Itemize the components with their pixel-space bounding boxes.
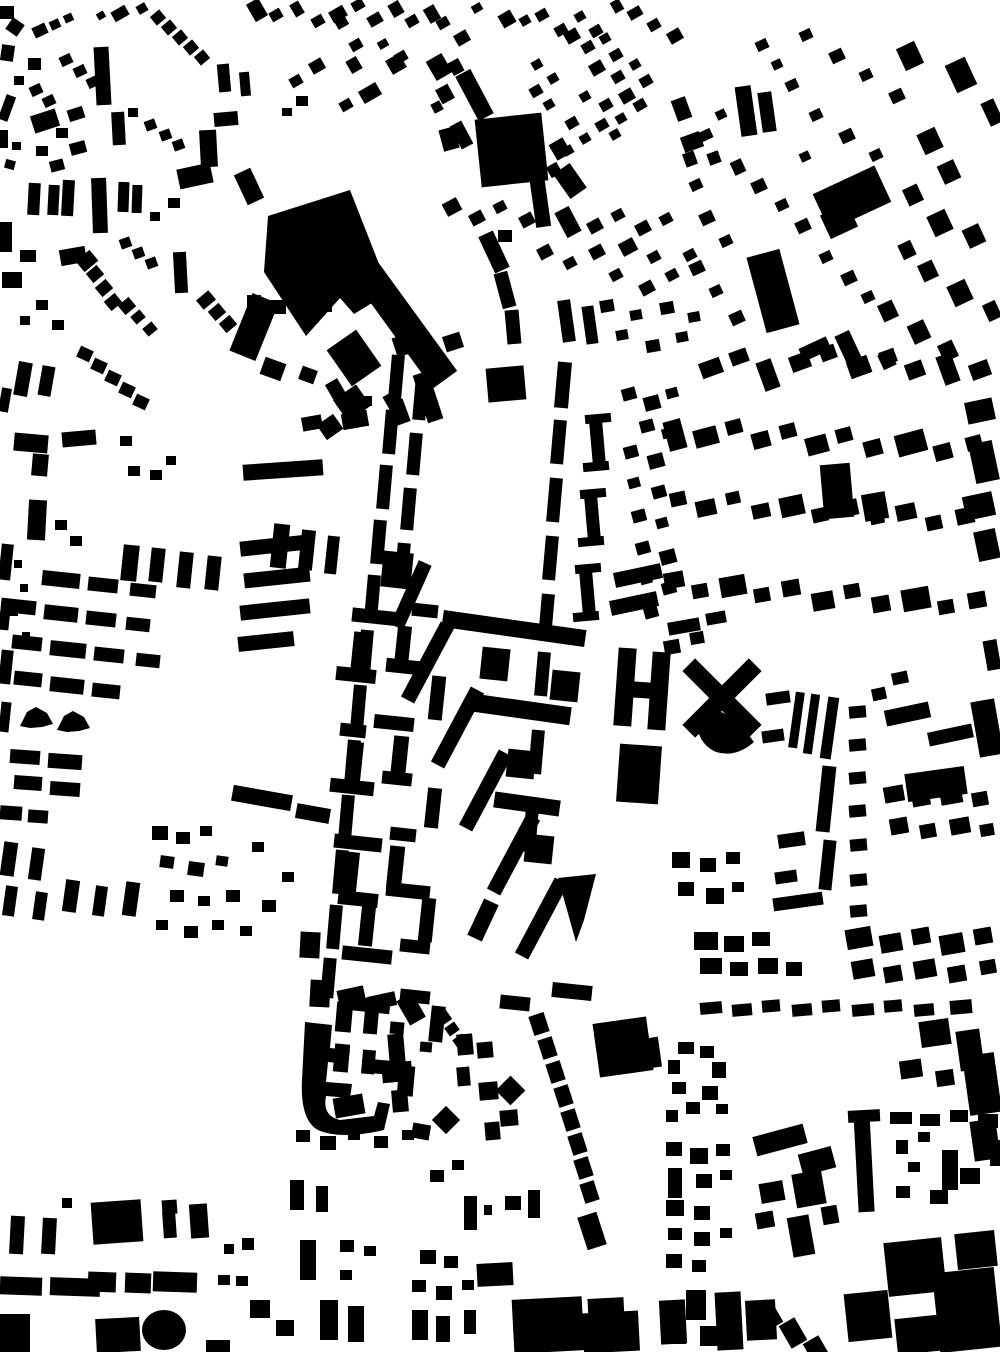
building-footprint [452, 1160, 464, 1170]
building-footprint [14, 560, 22, 568]
building-footprint [935, 1069, 955, 1087]
building-footprint [758, 1180, 785, 1204]
building-footprint [363, 1007, 379, 1034]
building-footprint [226, 890, 240, 902]
building-footprint [849, 804, 867, 817]
building-footprint [132, 185, 143, 213]
round-building [142, 1310, 186, 1350]
building-footprint [762, 999, 781, 1013]
building-footprint [911, 927, 932, 946]
building-footprint [666, 1142, 682, 1156]
building-footprint [436, 1316, 450, 1342]
building-footprint [896, 1186, 910, 1198]
building-footprint [724, 936, 744, 952]
building-footprint [348, 1306, 364, 1342]
building-footprint [213, 111, 238, 127]
building-footprint [753, 587, 771, 604]
building-footprint [290, 1180, 304, 1210]
building-footprint [215, 855, 228, 867]
building-footprint [189, 1203, 209, 1238]
building-footprint [31, 453, 49, 476]
building-footprint [663, 639, 681, 656]
building-footprint [666, 1200, 684, 1216]
building-footprint [908, 1162, 920, 1172]
building-footprint [850, 904, 868, 917]
building-footprint [979, 823, 995, 837]
building-footprint [899, 1059, 923, 1080]
building-footprint [412, 1280, 426, 1292]
building-footprint [896, 1140, 908, 1154]
building-footprint [686, 1102, 700, 1114]
building-footprint [0, 805, 22, 821]
building-footprint [166, 456, 176, 465]
building-footprint [309, 979, 330, 1007]
building-footprint [550, 670, 581, 703]
building-footprint [938, 932, 965, 956]
building-footprint [339, 723, 366, 739]
building-footprint [786, 962, 802, 976]
building-footprint [41, 1218, 57, 1255]
building-footprint [200, 826, 212, 836]
building-footprint [13, 671, 42, 688]
building-footprint [700, 1046, 714, 1058]
building-footprint [720, 1228, 732, 1238]
building-footprint [690, 1148, 708, 1164]
building-footprint [391, 1089, 409, 1112]
building-footprint [755, 1211, 776, 1230]
building-footprint [176, 832, 190, 844]
building-footprint [168, 198, 180, 208]
building-footprint [678, 882, 694, 896]
building-footprint [55, 520, 67, 530]
building-footprint [28, 58, 41, 70]
building-footprint [156, 920, 168, 930]
building-footprint [12, 142, 21, 150]
building-footprint [883, 965, 904, 984]
building-footprint [844, 1290, 893, 1342]
building-footprint [668, 1168, 682, 1198]
building-footprint [129, 583, 156, 599]
building-footprint [50, 781, 81, 797]
building-footprint [476, 1262, 513, 1287]
building-footprint [14, 775, 43, 791]
building-footprint [36, 300, 48, 310]
building-footprint [821, 1205, 840, 1226]
building-footprint [22, 632, 30, 640]
building-footprint [663, 570, 685, 589]
building-footprint [128, 466, 140, 476]
building-footprint [954, 1230, 998, 1270]
building-footprint [120, 436, 132, 446]
building-footprint [678, 1042, 694, 1054]
building-footprint [720, 1170, 732, 1180]
building-footprint [150, 470, 162, 480]
building-footprint [47, 185, 60, 216]
building-footprint [694, 932, 718, 950]
building-footprint [582, 1311, 640, 1352]
building-footprint [212, 920, 224, 930]
building-footprint [340, 1240, 354, 1252]
building-footprint [239, 72, 251, 97]
building-footprint [320, 1300, 338, 1340]
building-footprint [484, 1121, 501, 1140]
building-footprint [851, 958, 876, 980]
building-footprint [159, 855, 175, 869]
building-footprint [10, 749, 41, 765]
building-footprint [920, 1114, 940, 1126]
building-footprint [979, 959, 997, 976]
building-footprint [91, 178, 108, 233]
building-footprint [668, 1228, 682, 1240]
building-footprint [781, 579, 802, 598]
building-footprint [282, 872, 294, 882]
building-footprint [250, 1300, 270, 1318]
building-footprint [217, 64, 231, 93]
building-footprint [20, 250, 36, 262]
building-footprint [300, 1240, 316, 1280]
building-footprint [62, 1198, 72, 1208]
building-footprint [686, 1290, 706, 1320]
building-footprint [20, 584, 28, 592]
building-footprint [88, 1272, 117, 1293]
building-footprint [10, 608, 18, 616]
building-footprint [27, 183, 41, 216]
building-footprint [645, 339, 661, 353]
building-footprint [752, 932, 770, 946]
building-footprint [937, 599, 955, 616]
building-footprint [420, 1250, 436, 1264]
building-footprint [811, 590, 836, 612]
building-footprint [95, 1317, 141, 1352]
building-footprint [128, 108, 138, 117]
building-footprint [528, 1190, 540, 1218]
building-footprint [111, 112, 126, 146]
building-footprint [14, 76, 24, 85]
building-footprint [942, 1150, 958, 1190]
building-footprint [135, 653, 160, 668]
building-footprint [716, 1144, 730, 1156]
building-footprint [240, 926, 252, 936]
building-footprint [506, 749, 537, 780]
building-footprint [694, 1206, 710, 1220]
building-footprint [476, 1041, 493, 1058]
building-footprint [173, 252, 188, 294]
building-footprint [91, 683, 120, 700]
building-footprint [850, 873, 868, 886]
building-footprint [666, 1254, 682, 1268]
building-footprint [9, 1216, 25, 1255]
building-footprint [672, 852, 690, 868]
building-footprint [28, 809, 49, 823]
building-footprint [236, 1276, 248, 1286]
building-footprint [918, 1132, 930, 1142]
building-footprint [498, 230, 512, 242]
building-footprint [262, 900, 276, 912]
building-footprint [316, 1186, 328, 1212]
building-footprint [884, 999, 903, 1013]
building-footprint [499, 1109, 518, 1127]
building-footprint [505, 1196, 521, 1210]
building-footprint [420, 1041, 433, 1052]
building-footprints-svg [0, 0, 1000, 1352]
building-footprint [889, 817, 910, 836]
building-footprint [732, 882, 744, 892]
building-footprint [198, 896, 210, 906]
building-footprint [694, 1232, 710, 1246]
building-footprint [296, 96, 308, 106]
building-footprint [691, 583, 709, 600]
building-footprint [629, 309, 643, 321]
building-footprint [13, 433, 48, 454]
building-footprint [464, 1310, 476, 1334]
building-footprint [125, 1273, 152, 1294]
building-footprint [150, 212, 160, 221]
building-footprint [20, 316, 30, 325]
building-footprint [700, 858, 716, 872]
building-footprint [599, 299, 615, 313]
building-footprint [478, 1081, 498, 1101]
building-footprint [52, 320, 64, 330]
building-footprint [672, 1082, 686, 1094]
building-footprint [340, 1270, 352, 1280]
building-footprint [162, 1212, 177, 1239]
building-footprint [0, 6, 14, 19]
building-footprint [949, 999, 972, 1015]
building-footprint [879, 932, 904, 954]
building-footprint [914, 1003, 935, 1017]
building-footprint [444, 1256, 458, 1268]
building-footprint [949, 816, 971, 835]
building-footprint [464, 1196, 477, 1230]
building-footprint [700, 1001, 723, 1015]
building-footprint [950, 1110, 968, 1122]
building-footprint [61, 180, 75, 217]
building-footprint [849, 705, 867, 718]
building-footprint [456, 1066, 471, 1086]
building-footprint [456, 1033, 474, 1055]
building-footprint [484, 1205, 492, 1215]
building-footprint [689, 631, 705, 645]
building-footprint [702, 1086, 718, 1100]
building-footprint [730, 962, 748, 976]
building-footprint [436, 1286, 452, 1300]
building-footprint [700, 1326, 722, 1346]
building-footprint [389, 827, 416, 843]
building-footprint [0, 1314, 30, 1352]
building-footprint [675, 331, 689, 343]
building-footprint [638, 1037, 662, 1069]
building-footprint [947, 965, 968, 984]
figure-ground-city-map [0, 0, 1000, 1352]
building-footprint [199, 130, 218, 168]
building-footprint [615, 329, 629, 341]
building-footprint [187, 861, 205, 877]
building-footprint [696, 1174, 712, 1188]
building-footprint [791, 1170, 826, 1209]
building-footprint [758, 958, 778, 974]
building-footprint [890, 1112, 912, 1124]
building-footprint [430, 1170, 444, 1182]
building-footprint [659, 301, 675, 315]
building-footprint [56, 128, 68, 138]
building-footprint [849, 738, 867, 751]
building-footprint [716, 1104, 728, 1114]
building-footprint [627, 681, 654, 699]
building-footprint [320, 1136, 336, 1150]
building-footprint [412, 1310, 428, 1340]
building-footprint [411, 1123, 431, 1141]
building-footprint [206, 1340, 230, 1352]
building-footprint [411, 603, 438, 619]
building-footprint [967, 591, 988, 610]
building-footprint [0, 44, 15, 62]
building-footprint [48, 753, 83, 770]
building-footprint [374, 1136, 388, 1148]
building-footprint [939, 784, 964, 806]
building-footprint [732, 1003, 753, 1017]
building-footprint [0, 222, 12, 252]
building-footprint [692, 1260, 706, 1272]
building-footprint [973, 927, 994, 946]
building-footprint [0, 1276, 42, 1295]
building-footprint [687, 311, 701, 323]
building-footprint [70, 536, 82, 546]
building-footprint [918, 1018, 951, 1048]
building-footprint [27, 500, 47, 541]
building-footprint [296, 1130, 310, 1142]
building-footprint [61, 430, 96, 448]
building-footprint [666, 1110, 678, 1122]
building-footprint [36, 146, 48, 156]
building-footprint [822, 999, 841, 1013]
building-footprint [0, 130, 8, 148]
building-footprint [390, 1021, 405, 1034]
building-footprint [505, 309, 522, 344]
building-footprint [91, 1199, 144, 1244]
building-footprint [2, 272, 22, 288]
building-footprint [668, 1060, 680, 1074]
building-footprint [919, 823, 937, 840]
building-footprint [479, 647, 510, 682]
building-footprint [792, 1003, 813, 1017]
building-footprint [364, 1246, 376, 1256]
building-footprint [93, 47, 111, 106]
building-footprint [894, 1313, 957, 1352]
building-footprint [512, 1296, 585, 1352]
building-footprint [871, 595, 892, 614]
building-footprint [848, 1109, 881, 1123]
building-footprint [726, 852, 740, 864]
building-footprint [668, 1320, 686, 1344]
building-footprint [706, 888, 724, 904]
building-footprint [843, 583, 861, 600]
building-footprint [930, 1190, 948, 1204]
building-footprint [712, 1062, 726, 1078]
building-footprint [252, 842, 264, 852]
building-footprint [883, 784, 905, 803]
building-footprint [276, 1320, 294, 1336]
building-footprint [852, 1003, 875, 1017]
building-footprint [242, 1238, 254, 1250]
building-footprint [282, 108, 292, 116]
building-footprint [616, 744, 662, 805]
building-footprint [152, 826, 168, 840]
building-footprint [850, 838, 868, 851]
building-footprint [224, 1244, 234, 1254]
building-footprint [849, 771, 867, 784]
building-footprint [299, 931, 320, 958]
building-footprint [913, 958, 938, 980]
building-footprint [462, 1280, 474, 1290]
building-footprint [218, 1275, 230, 1285]
building-footprint [170, 890, 184, 902]
building-footprint [125, 617, 150, 632]
building-footprint [117, 182, 129, 212]
building-footprint [700, 958, 722, 974]
building-footprint [475, 113, 549, 188]
building-footprint [971, 791, 989, 808]
building-footprint [153, 1271, 198, 1293]
building-footprint [960, 1168, 980, 1184]
building-footprint [486, 365, 527, 402]
building-footprint [184, 926, 198, 938]
